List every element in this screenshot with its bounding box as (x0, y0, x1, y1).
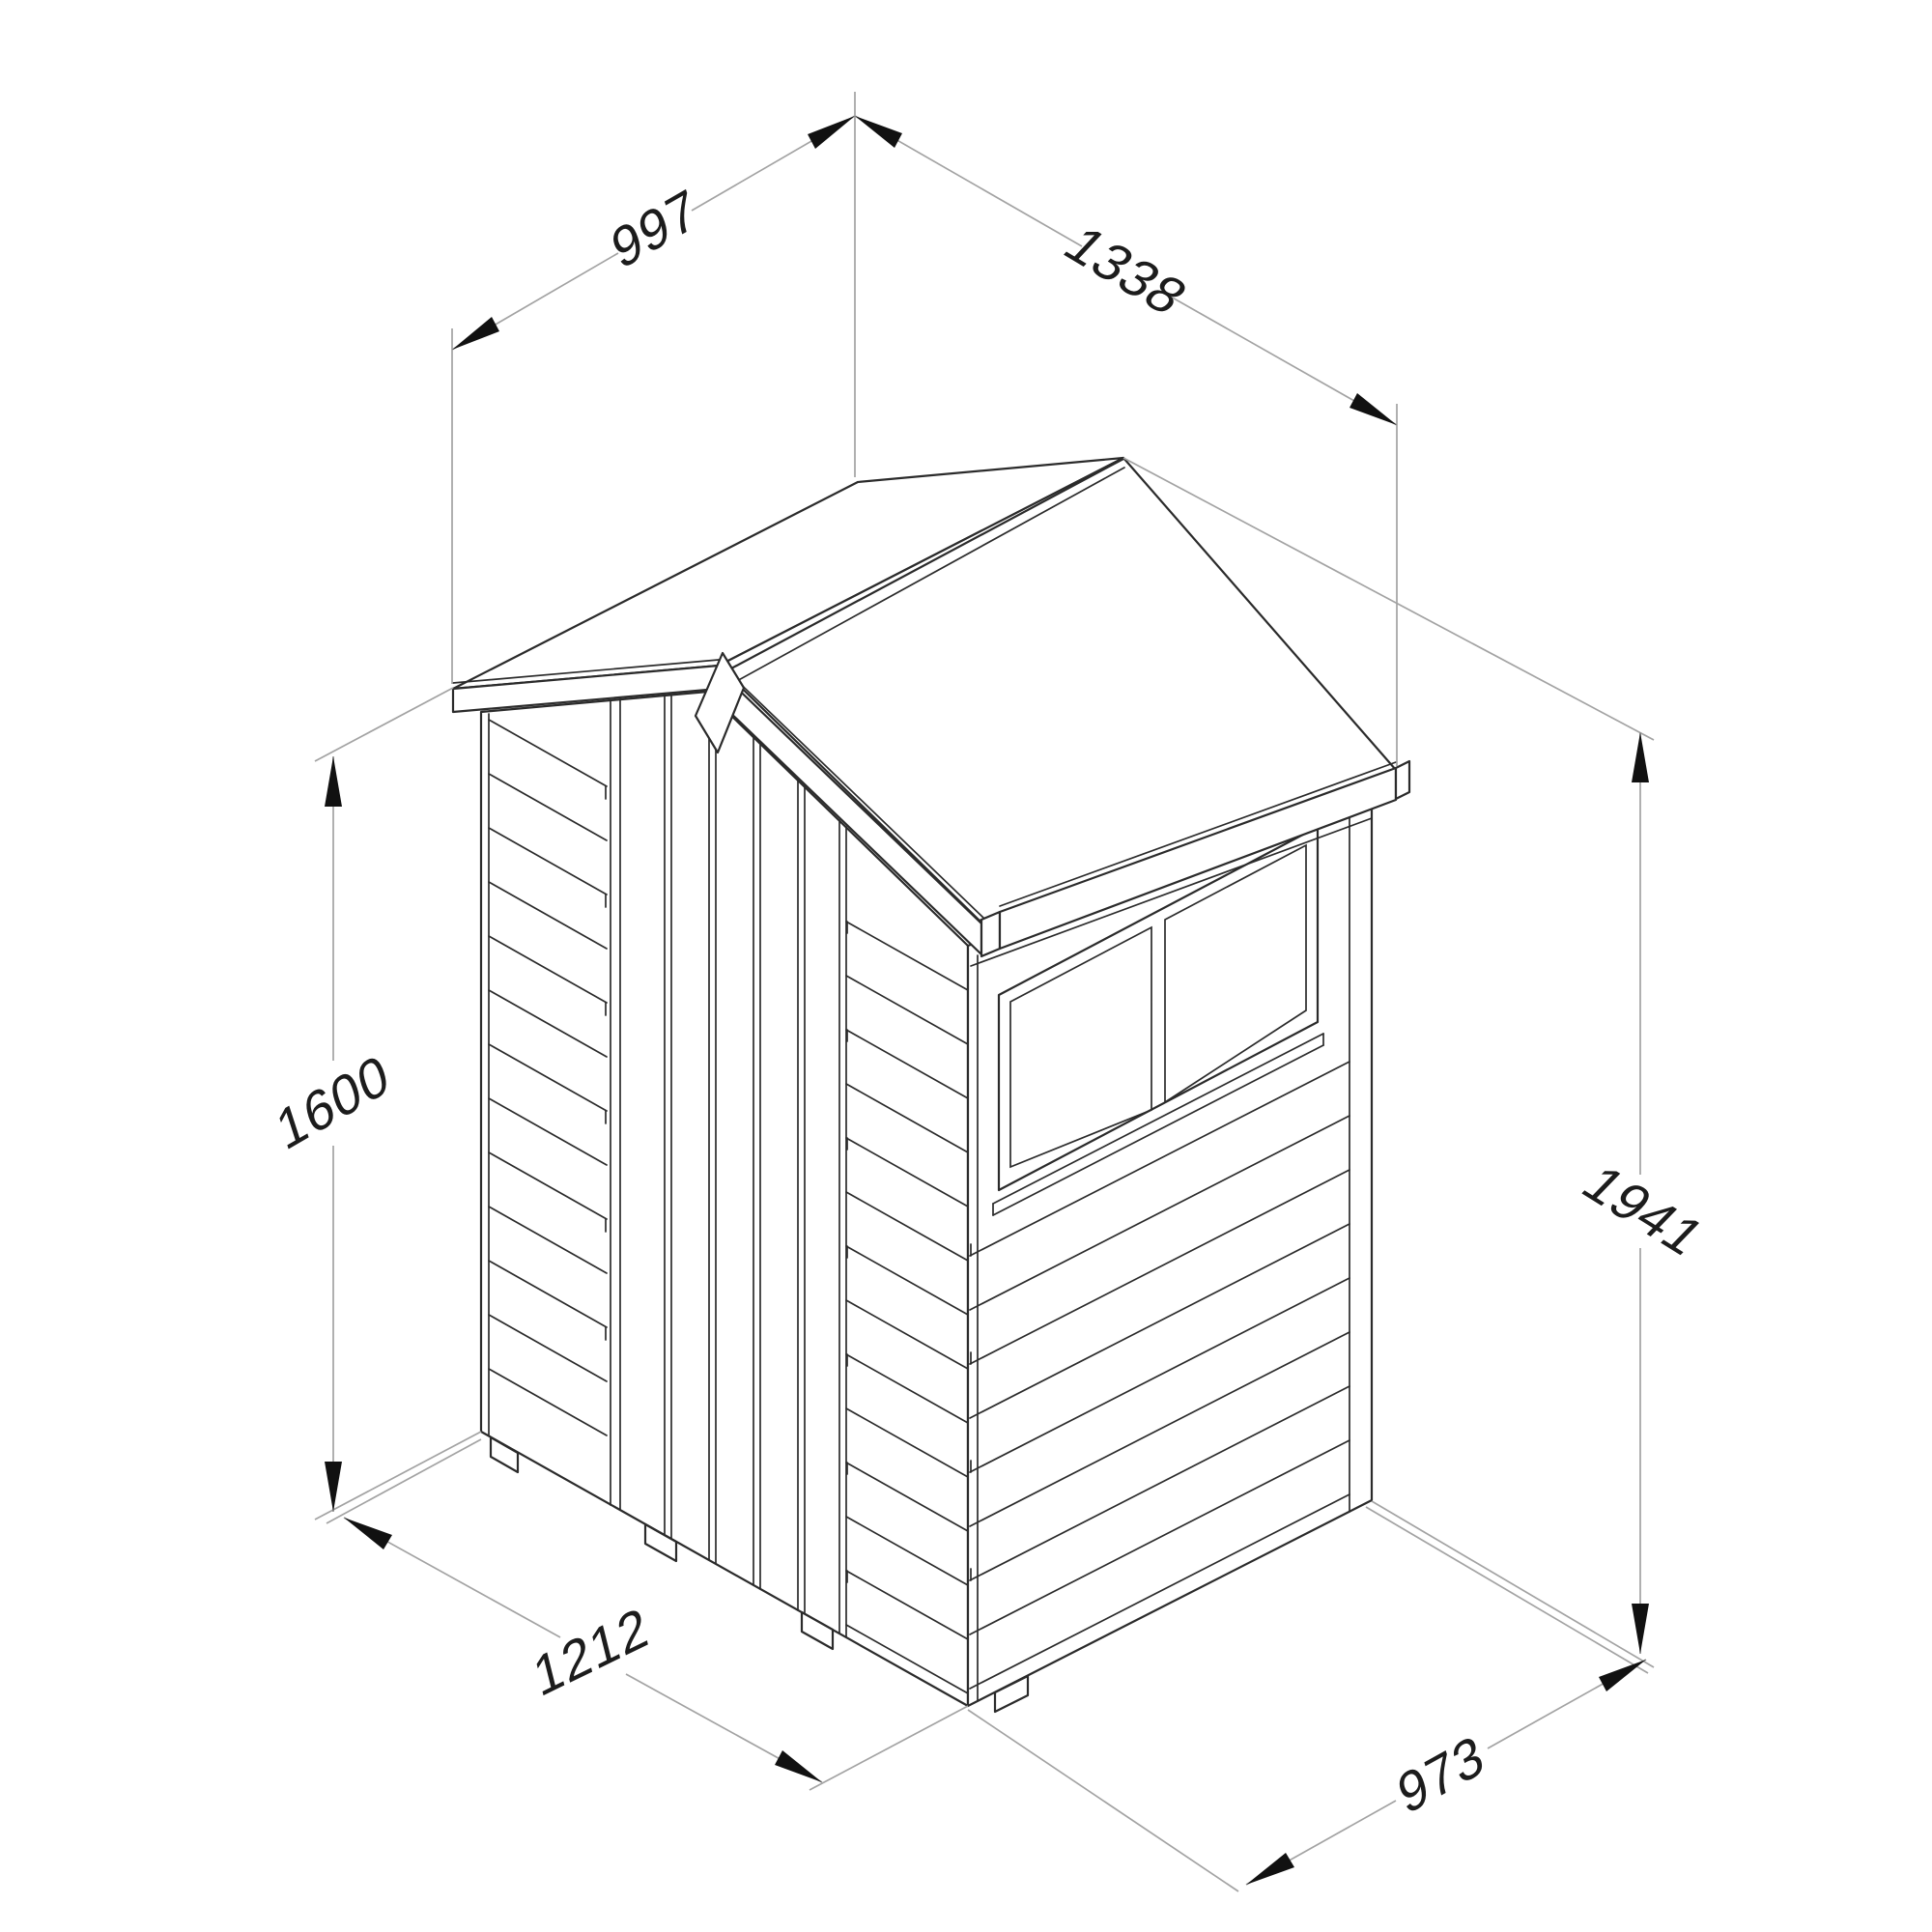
drawing-canvas: 997 1338 1600 1941 (0, 0, 1932, 1932)
extension-line (327, 1439, 481, 1523)
extension-line (315, 1432, 481, 1520)
arrowhead (344, 1518, 392, 1549)
barge-end-cap (981, 912, 1000, 956)
shed-isometric-drawing: 997 1338 1600 1941 (0, 0, 1932, 1932)
arrowhead (855, 116, 902, 148)
dim-left-height: 1600 (270, 688, 481, 1520)
arrowhead (1632, 1604, 1649, 1654)
arrowhead (452, 317, 499, 350)
dimension-label: 997 (605, 176, 704, 281)
dimension-label: 1941 (1570, 1155, 1718, 1265)
extension-line (315, 688, 453, 761)
arrowhead (1599, 1660, 1646, 1691)
extension-line (810, 1706, 968, 1790)
dimension-label: 1212 (527, 1595, 654, 1709)
arrowhead (1246, 1853, 1294, 1885)
arrowhead (325, 1462, 342, 1512)
eave-fascia-end-cap (1396, 761, 1409, 799)
dimension-label: 973 (1391, 1722, 1491, 1827)
arrowhead (1632, 732, 1649, 782)
extension-line (968, 1710, 1238, 1891)
arrowhead (775, 1750, 822, 1782)
dim-bottom-side: 973 (968, 1660, 1646, 1891)
shed (453, 458, 1409, 1712)
ground-line (1366, 1501, 1654, 1673)
arrowhead (325, 756, 342, 807)
dimension-label: 1338 (1052, 216, 1201, 326)
arrowhead (808, 116, 855, 149)
arrowhead (1350, 393, 1397, 425)
